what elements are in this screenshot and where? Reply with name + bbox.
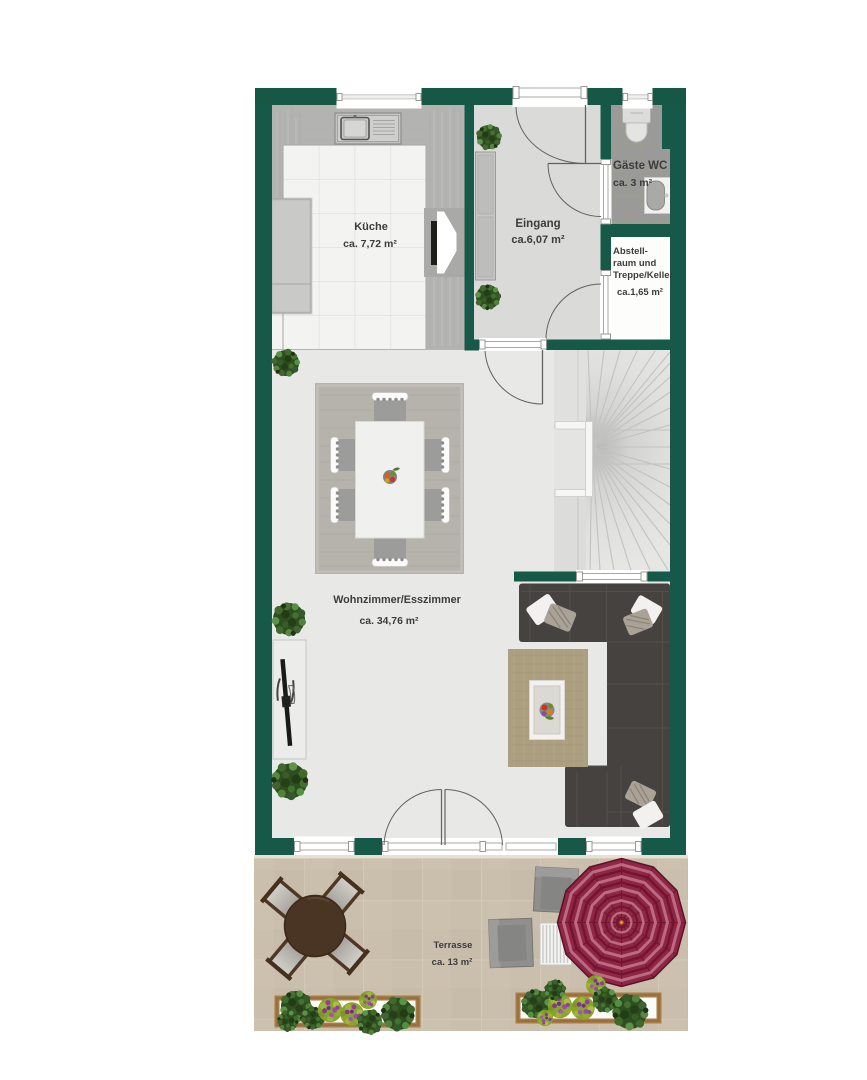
svg-text:Küche: Küche <box>354 221 388 233</box>
svg-text:Gäste WC: Gäste WC <box>613 160 667 172</box>
svg-text:raum und: raum und <box>613 258 656 269</box>
svg-text:ca. 34,76 m²: ca. 34,76 m² <box>360 616 419 627</box>
svg-text:Wohnzimmer/Esszimmer: Wohnzimmer/Esszimmer <box>333 594 461 606</box>
svg-text:ca.1,65 m²: ca.1,65 m² <box>617 287 663 298</box>
svg-text:Abstell-: Abstell- <box>613 246 648 257</box>
svg-text:ca.6,07 m²: ca.6,07 m² <box>511 234 565 246</box>
svg-text:Terrasse: Terrasse <box>434 940 473 951</box>
svg-text:ca. 3 m²: ca. 3 m² <box>613 177 653 189</box>
svg-text:ca. 13 m²: ca. 13 m² <box>432 957 473 968</box>
svg-text:Treppe/Keller: Treppe/Keller <box>613 270 673 281</box>
svg-text:ca. 7,72 m²: ca. 7,72 m² <box>343 238 397 250</box>
svg-text:Eingang: Eingang <box>515 218 560 230</box>
